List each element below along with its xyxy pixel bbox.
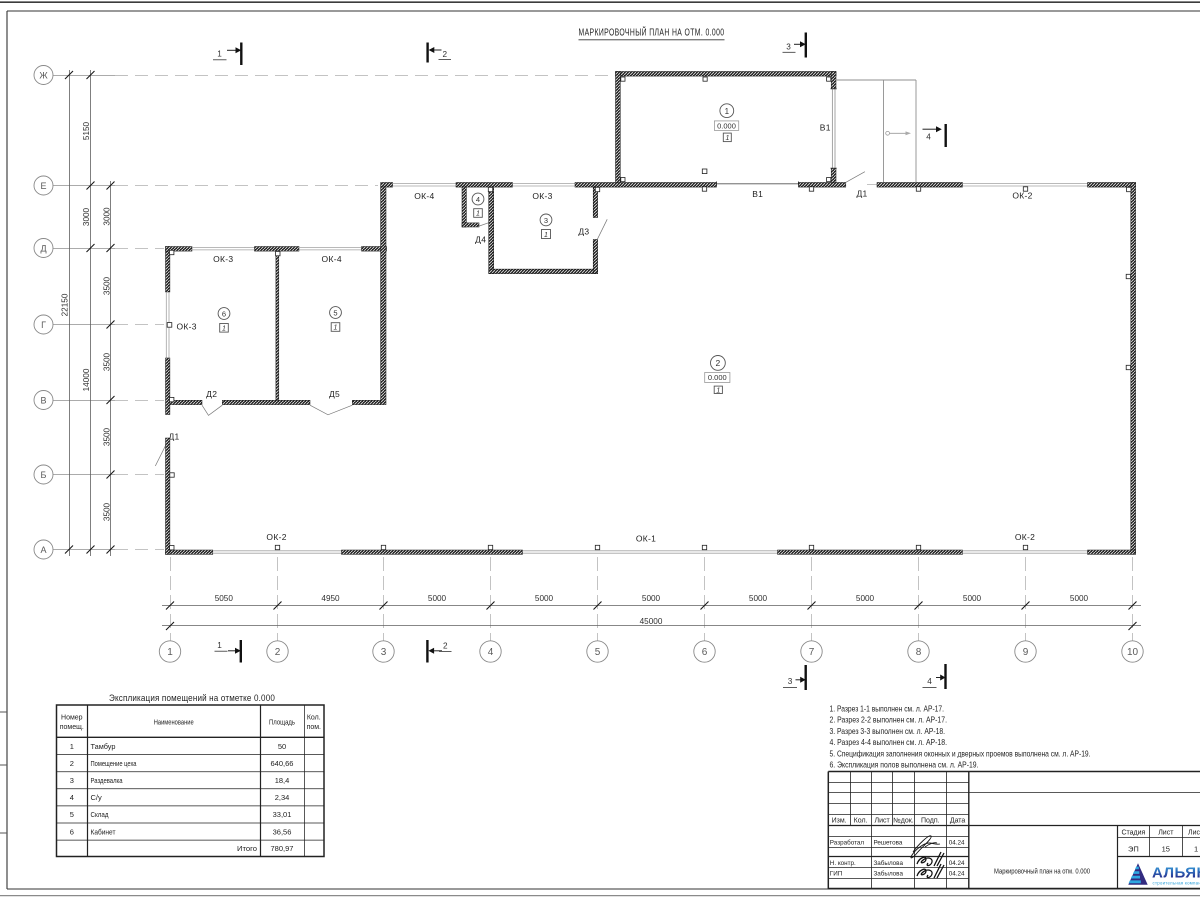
svg-text:4: 4 <box>927 677 932 686</box>
svg-text:3000: 3000 <box>82 207 91 226</box>
svg-text:пом.: пом. <box>307 724 321 731</box>
svg-text:1: 1 <box>217 641 222 650</box>
svg-text:04.24: 04.24 <box>949 860 965 867</box>
svg-text:ОК-2: ОК-2 <box>1012 190 1032 200</box>
svg-text:Маркировочный план на отм. 0.0: Маркировочный план на отм. 0.000 <box>994 868 1090 876</box>
svg-text:36,56: 36,56 <box>273 827 292 836</box>
svg-text:Е: Е <box>40 181 46 191</box>
svg-text:45000: 45000 <box>640 617 663 626</box>
svg-text:4: 4 <box>476 195 480 204</box>
svg-text:50: 50 <box>278 742 286 751</box>
svg-text:2. Разрез 2-2 выполнен см. л.: 2. Разрез 2-2 выполнен см. л. АР-17. <box>830 715 948 725</box>
svg-text:ОК-3: ОК-3 <box>177 321 197 331</box>
svg-text:10: 10 <box>1127 647 1139 658</box>
svg-text:3. Разрез 3-3 выполнен см. л.: 3. Разрез 3-3 выполнен см. л. АР-18. <box>830 726 946 736</box>
svg-text:ГИП: ГИП <box>830 871 843 878</box>
svg-text:1: 1 <box>222 326 226 333</box>
svg-text:В1: В1 <box>820 122 831 132</box>
svg-text:Д1: Д1 <box>169 432 180 442</box>
svg-text:1: 1 <box>334 325 338 332</box>
svg-text:5: 5 <box>333 309 337 318</box>
svg-text:Склад: Склад <box>91 810 110 819</box>
svg-text:2: 2 <box>70 759 74 768</box>
svg-text:Дата: Дата <box>950 818 966 825</box>
svg-text:Номер: Номер <box>61 715 83 722</box>
svg-text:2: 2 <box>443 642 448 651</box>
svg-text:0.000: 0.000 <box>708 373 727 382</box>
svg-text:04.24: 04.24 <box>949 871 965 878</box>
svg-text:С/у: С/у <box>91 793 103 802</box>
svg-text:5000: 5000 <box>535 594 554 603</box>
svg-text:3: 3 <box>788 677 793 686</box>
svg-text:Лист: Лист <box>1158 830 1174 837</box>
svg-text:ОК-4: ОК-4 <box>414 191 434 201</box>
svg-text:780,97: 780,97 <box>271 844 294 853</box>
svg-text:Д1: Д1 <box>856 189 867 199</box>
svg-text:6: 6 <box>702 647 708 658</box>
svg-text:ОК-1: ОК-1 <box>636 534 656 544</box>
svg-text:Итого: Итого <box>237 844 257 853</box>
svg-text:ЭП: ЭП <box>1128 845 1139 854</box>
svg-text:1: 1 <box>544 232 548 239</box>
svg-text:4: 4 <box>70 793 74 802</box>
svg-text:Тамбур: Тамбур <box>91 742 116 751</box>
svg-text:8: 8 <box>916 647 922 658</box>
svg-text:Экспликация помещений на отмет: Экспликация помещений на отметке 0.000 <box>109 693 275 704</box>
svg-text:5000: 5000 <box>963 594 982 603</box>
svg-text:2: 2 <box>443 50 448 59</box>
svg-text:Ж: Ж <box>39 70 48 80</box>
svg-text:Забылова: Забылова <box>874 870 904 878</box>
svg-text:3: 3 <box>70 776 74 785</box>
svg-text:Площадь: Площадь <box>269 720 295 727</box>
svg-text:Н. контр.: Н. контр. <box>830 860 856 867</box>
svg-text:2: 2 <box>275 647 281 658</box>
svg-text:4. Разрез 4-4 выполнен см. л.: 4. Разрез 4-4 выполнен см. л. АР-18. <box>830 737 948 747</box>
svg-text:Решетова: Решетова <box>874 839 903 846</box>
svg-text:1: 1 <box>726 135 730 142</box>
svg-text:4950: 4950 <box>321 594 340 603</box>
svg-text:Изм.: Изм. <box>832 818 847 825</box>
svg-text:3: 3 <box>381 647 387 658</box>
svg-text:В1: В1 <box>752 189 763 199</box>
svg-text:1: 1 <box>716 387 720 394</box>
svg-text:Разработал: Разработал <box>830 838 865 846</box>
svg-text:9: 9 <box>1023 647 1029 658</box>
svg-text:1: 1 <box>167 647 173 658</box>
svg-text:1. Разрез 1-1 выполнен см. л.: 1. Разрез 1-1 выполнен см. л. АР-17. <box>830 704 945 714</box>
svg-text:Д: Д <box>40 243 46 253</box>
svg-text:5000: 5000 <box>642 594 661 603</box>
svg-text:3: 3 <box>544 216 548 225</box>
svg-text:1: 1 <box>217 50 222 59</box>
svg-text:1: 1 <box>70 742 74 751</box>
svg-text:Забылова: Забылова <box>874 859 904 867</box>
svg-text:14000: 14000 <box>82 368 91 391</box>
svg-text:ОК-3: ОК-3 <box>213 254 233 264</box>
svg-text:Д3: Д3 <box>578 227 589 237</box>
svg-text:6: 6 <box>70 827 74 836</box>
svg-text:640,66: 640,66 <box>271 759 294 768</box>
svg-text:А: А <box>40 545 46 555</box>
svg-text:7: 7 <box>809 647 815 658</box>
svg-text:3500: 3500 <box>102 427 111 446</box>
svg-text:АЛЬЯНС: АЛЬЯНС <box>1152 865 1200 882</box>
svg-text:4: 4 <box>926 133 931 142</box>
svg-text:5000: 5000 <box>428 594 447 603</box>
svg-text:ОК-4: ОК-4 <box>322 254 342 264</box>
svg-text:ОК-2: ОК-2 <box>266 532 286 542</box>
svg-text:1: 1 <box>476 211 480 218</box>
svg-text:15: 15 <box>1162 845 1170 854</box>
svg-text:ОК-2: ОК-2 <box>1015 532 1035 542</box>
svg-text:5050: 5050 <box>215 594 234 603</box>
svg-text:22150: 22150 <box>61 293 70 316</box>
svg-text:Д4: Д4 <box>475 234 486 244</box>
svg-text:5: 5 <box>70 810 74 819</box>
svg-text:Стадия: Стадия <box>1121 830 1145 837</box>
svg-text:5150: 5150 <box>82 121 91 140</box>
svg-text:6. Экспликация полов выполнена: 6. Экспликация полов выполнена см. л. АР… <box>830 760 979 770</box>
svg-text:Б: Б <box>41 470 47 480</box>
svg-text:помещ.: помещ. <box>60 724 84 731</box>
svg-text:5000: 5000 <box>856 594 875 603</box>
svg-text:Раздевалка: Раздевалка <box>91 776 124 785</box>
svg-text:6: 6 <box>222 310 226 319</box>
svg-text:МАРКИРОВОЧНЫЙ ПЛАН НА ОТМ. 0.0: МАРКИРОВОЧНЫЙ ПЛАН НА ОТМ. 0.000 <box>579 26 725 39</box>
svg-text:33,01: 33,01 <box>273 810 292 819</box>
svg-text:ОК-3: ОК-3 <box>532 191 552 201</box>
svg-text:1: 1 <box>1194 845 1198 854</box>
svg-text:1: 1 <box>725 107 730 116</box>
svg-text:Д5: Д5 <box>329 389 340 399</box>
svg-text:Д2: Д2 <box>206 389 217 399</box>
svg-text:Кол.: Кол. <box>854 818 868 825</box>
svg-text:Наименование: Наименование <box>154 720 194 727</box>
svg-text:0.000: 0.000 <box>717 121 736 130</box>
svg-text:5000: 5000 <box>1070 594 1089 603</box>
svg-text:№док.: №док. <box>893 818 914 825</box>
svg-text:3500: 3500 <box>102 276 111 295</box>
svg-text:18,4: 18,4 <box>275 776 290 785</box>
svg-text:5: 5 <box>595 647 601 658</box>
svg-text:Листов: Листов <box>1188 830 1200 837</box>
svg-text:Подп.: Подп. <box>921 818 940 825</box>
svg-text:Лист: Лист <box>874 818 890 825</box>
svg-text:04.24: 04.24 <box>949 839 965 846</box>
svg-text:Г: Г <box>41 320 46 330</box>
svg-text:3500: 3500 <box>102 352 111 371</box>
svg-text:Кол.: Кол. <box>307 715 321 722</box>
svg-text:4: 4 <box>488 647 494 658</box>
svg-text:5. Спецификация заполнения око: 5. Спецификация заполнения оконных и две… <box>830 748 1091 758</box>
svg-text:Кабинет: Кабинет <box>91 827 116 836</box>
svg-text:5000: 5000 <box>749 594 768 603</box>
svg-text:2,34: 2,34 <box>275 793 290 802</box>
svg-text:3000: 3000 <box>102 207 111 226</box>
svg-text:2: 2 <box>716 358 721 368</box>
svg-text:строительная компания: строительная компания <box>1153 880 1200 885</box>
svg-text:Помещение цеха: Помещение цеха <box>91 759 138 768</box>
svg-text:3500: 3500 <box>102 502 111 521</box>
svg-text:В: В <box>40 395 46 405</box>
svg-text:3: 3 <box>786 43 791 52</box>
